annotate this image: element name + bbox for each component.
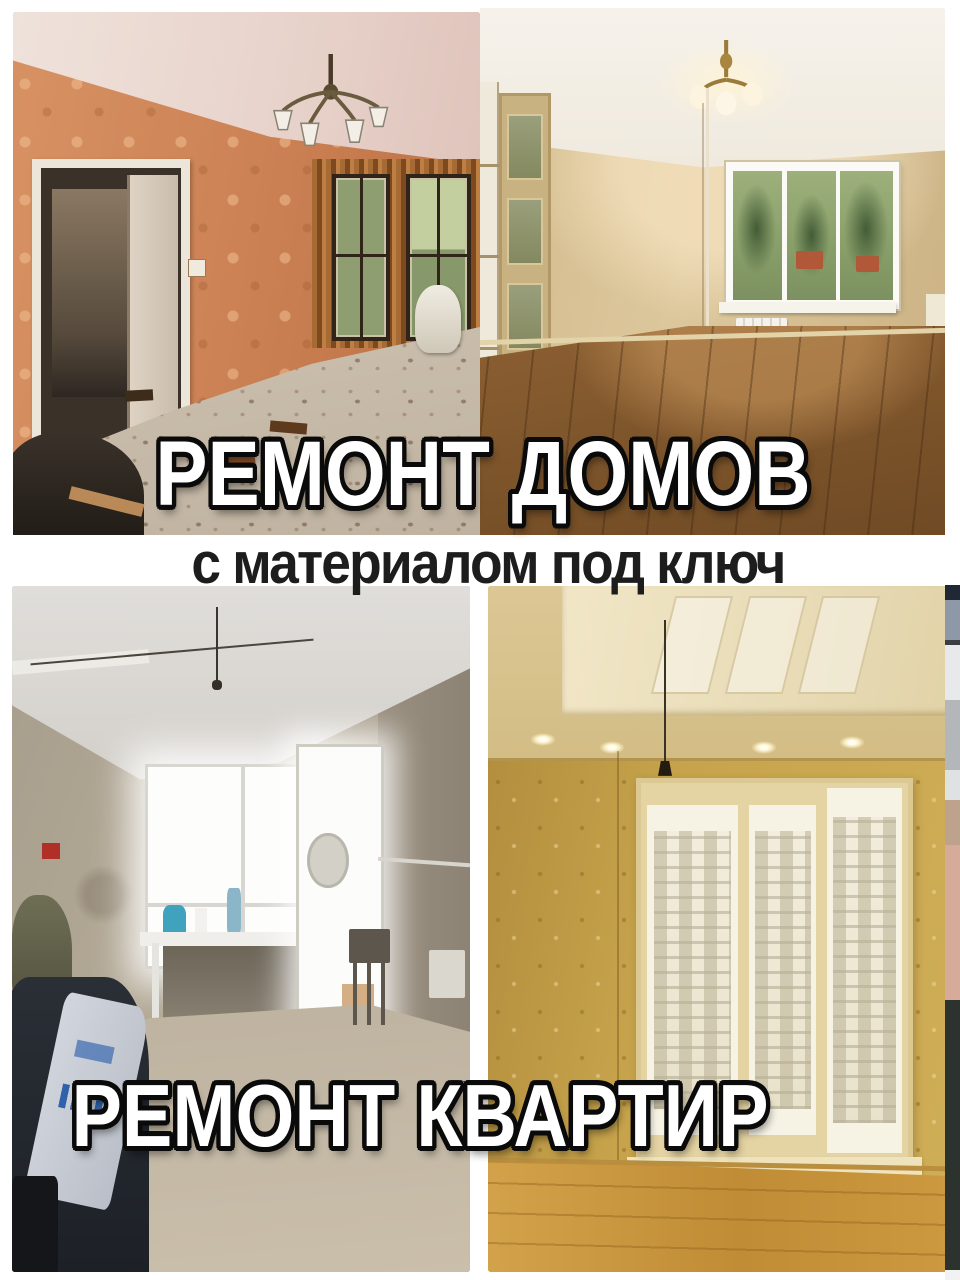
black-bucket [12, 1176, 58, 1272]
glossy-stretch-ceiling [562, 586, 950, 716]
pendant-wire [664, 620, 666, 764]
sill-item-blue [163, 905, 186, 936]
spotlight [599, 741, 625, 754]
spotlight [839, 736, 865, 749]
white-sack [415, 285, 462, 353]
debris [125, 389, 154, 401]
window [726, 162, 899, 310]
photo-before-apartment [12, 586, 470, 1272]
window-pane [733, 171, 782, 301]
chandelier [675, 40, 777, 146]
hanging-wire [216, 607, 218, 682]
hallway [52, 189, 129, 397]
pendant-lamp [658, 761, 672, 776]
sill-item [227, 888, 241, 936]
windowsill [719, 302, 896, 313]
window-pane [787, 171, 836, 301]
floor-fan [307, 833, 348, 888]
pipe [706, 88, 709, 327]
title-remont-kvartir: РЕМОНТ КВАРТИР [71, 1072, 768, 1160]
window [332, 174, 390, 341]
balcony-door-pane [827, 788, 902, 1153]
mop-handle [152, 943, 159, 1025]
renovation-ad-collage: с материалом под ключ [0, 0, 960, 1280]
red-wall-marks [42, 843, 60, 851]
photo-after-apartment [488, 586, 950, 1272]
windowsill [140, 932, 319, 946]
title-remont-domov: РЕМОНТ ДОМОВ [155, 428, 810, 520]
adjacent-slide-sliver [945, 545, 960, 1280]
small-radiator [429, 950, 466, 998]
chair [349, 929, 390, 963]
wall-corner [702, 103, 704, 326]
subtitle-text: с материалом под ключ [191, 534, 784, 594]
light-switch [188, 259, 206, 277]
chair-legs [353, 963, 385, 1025]
window-pane [840, 171, 892, 301]
